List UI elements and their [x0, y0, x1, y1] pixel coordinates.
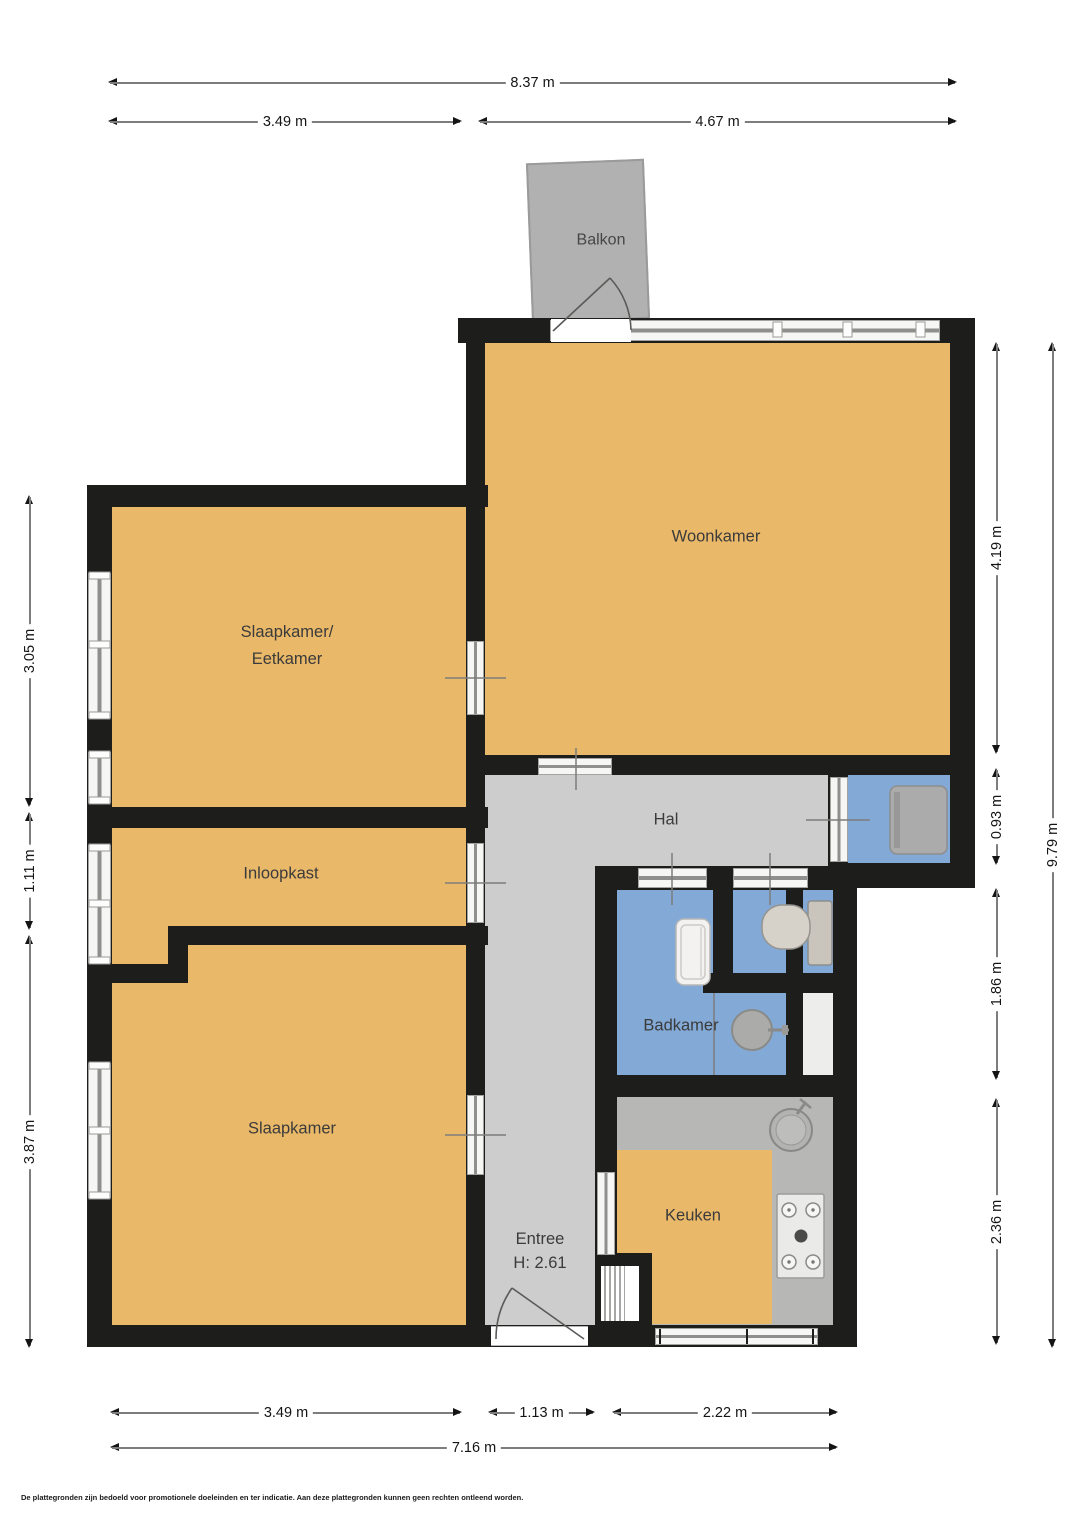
toilet-icon — [762, 901, 832, 965]
window-mullion-marks — [89, 322, 925, 1199]
dimension-top-total: 8.37 m — [108, 73, 957, 93]
bedroom-dining-label: Slaapkamer/ Eetkamer — [241, 619, 334, 673]
floor-plan: Balkon Woonkamer Slaapkamer/ Eetkamer In… — [0, 0, 1080, 1528]
washing-machine-icon — [890, 786, 947, 854]
dimension-top-right: 4.67 m — [478, 112, 957, 132]
entree-label-line1: Entree — [513, 1227, 566, 1251]
dimension-right-closet: 0.93 m — [987, 768, 1007, 865]
living-room-label: Woonkamer — [672, 524, 761, 551]
dimension-bottom-total: 7.16 m — [110, 1438, 838, 1458]
dimension-bottom-middle: 1.13 m — [488, 1403, 595, 1423]
fixtures-overlay — [0, 0, 1080, 1528]
front-door-swing-icon — [496, 1288, 584, 1339]
bedroom-dining-label-line2: Eetkamer — [241, 646, 334, 673]
dimension-top-left: 3.49 m — [108, 112, 462, 132]
balcony-label: Balkon — [577, 227, 626, 254]
entree-height-note: H: 2.61 — [513, 1251, 566, 1275]
entree-label: Entree H: 2.61 — [513, 1227, 566, 1275]
dimension-bottom-left: 3.49 m — [110, 1403, 462, 1423]
dimension-left-middle: 1.11 m — [20, 812, 40, 930]
dimension-bottom-right: 2.22 m — [612, 1403, 838, 1423]
bathroom-fixture-icon — [676, 919, 710, 985]
bathroom-label: Badkamer — [643, 1013, 718, 1040]
bedroom-dining-label-line1: Slaapkamer/ — [241, 619, 334, 646]
bathroom-sink-icon — [732, 1010, 789, 1050]
hall-label: Hal — [654, 807, 679, 834]
kitchen-sink-icon — [770, 1099, 812, 1151]
dimension-left-top: 3.05 m — [20, 495, 40, 807]
dimension-right-total: 9.79 m — [1043, 342, 1063, 1348]
kitchen-window-ticks — [660, 1329, 813, 1344]
dimension-right-woonkamer: 4.19 m — [987, 342, 1007, 754]
balcony-door-swing-icon — [553, 278, 631, 331]
dimension-left-bottom: 3.87 m — [20, 935, 40, 1348]
opening-tick-marks — [445, 678, 870, 1135]
dimension-right-badkamer: 1.86 m — [987, 888, 1007, 1080]
kitchen-label: Keuken — [665, 1203, 721, 1230]
bedroom-label: Slaapkamer — [248, 1116, 336, 1143]
walk-in-closet-label: Inloopkast — [243, 861, 318, 888]
gas-hob-icon — [777, 1194, 824, 1278]
disclaimer-text: De plattegronden zijn bedoeld voor promo… — [21, 1493, 523, 1502]
dimension-right-keuken: 2.36 m — [987, 1098, 1007, 1345]
